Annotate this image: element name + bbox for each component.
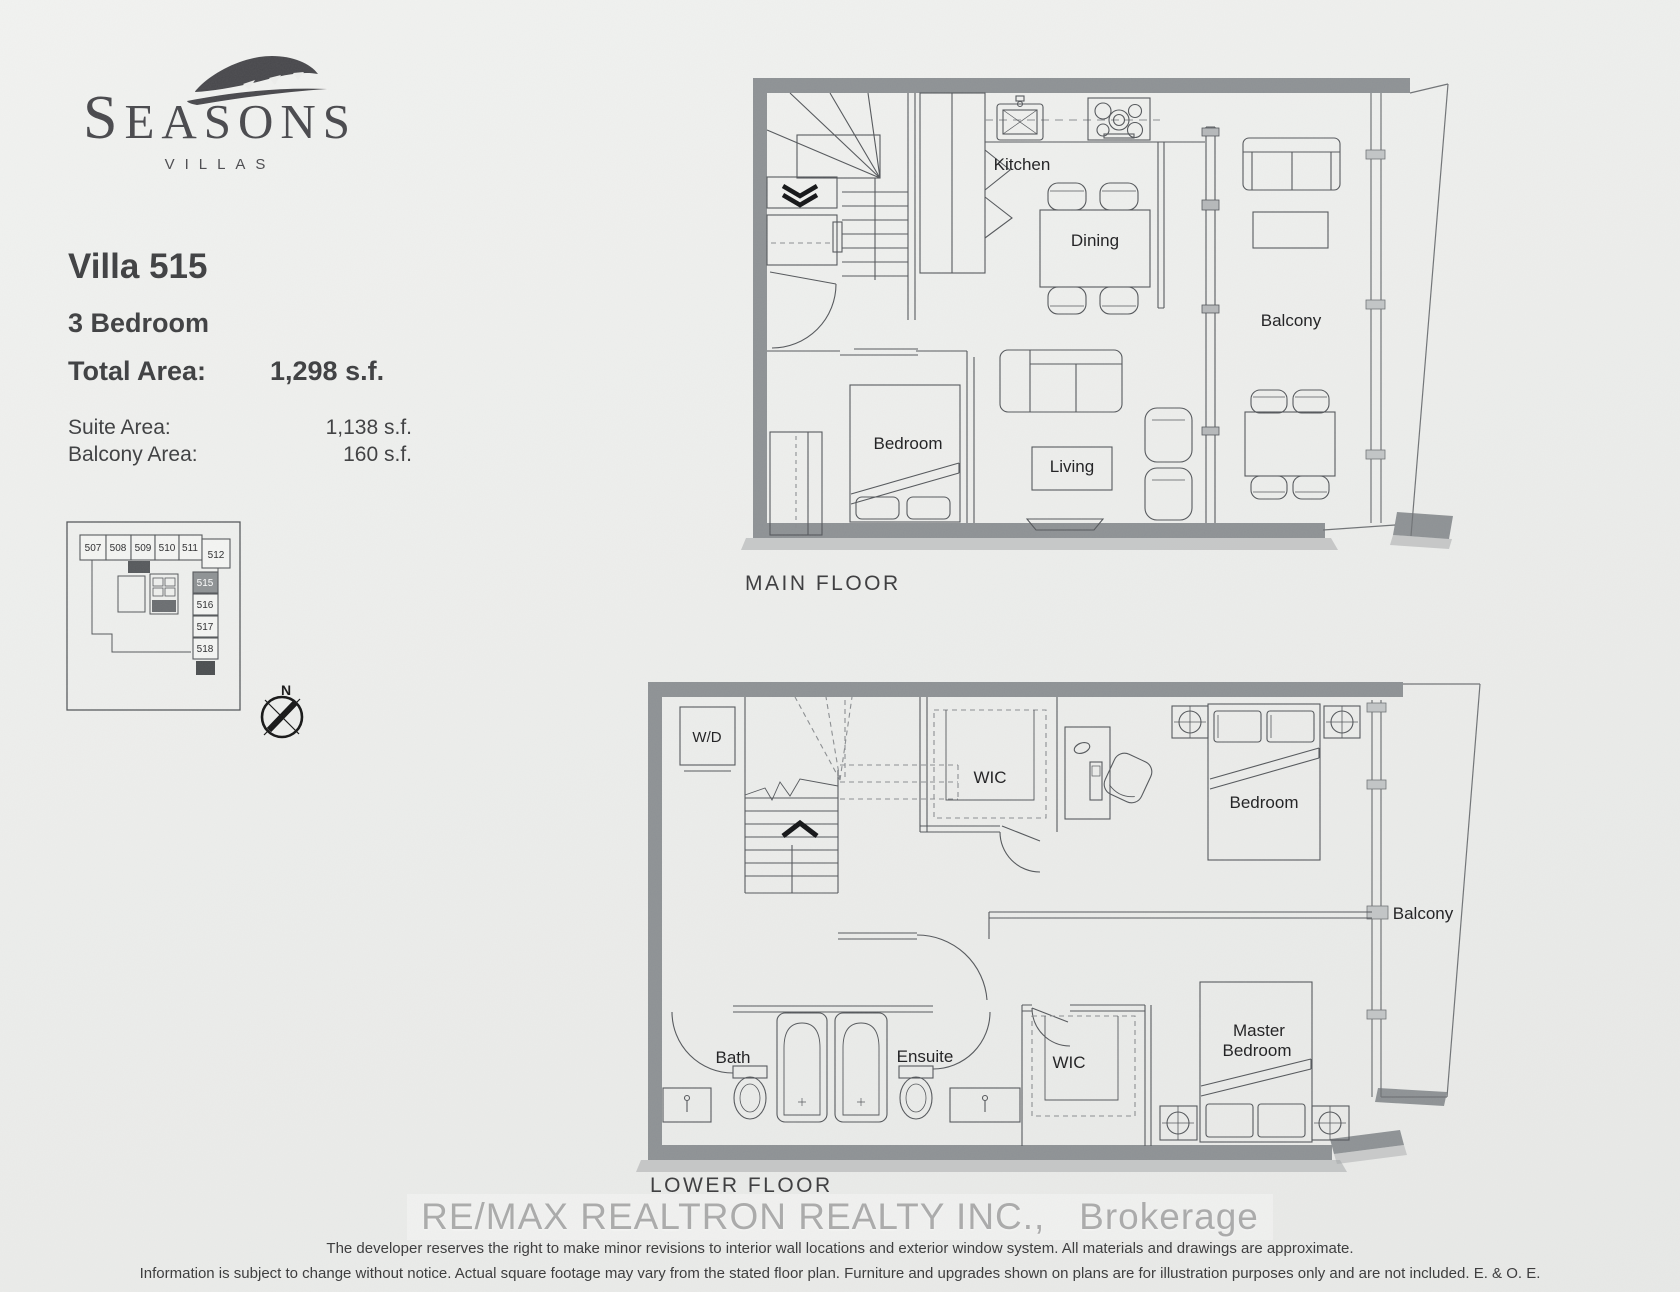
bed-icon	[1208, 704, 1320, 860]
chair-icon	[1100, 287, 1138, 314]
living-area	[1000, 350, 1192, 530]
sink-icon	[997, 96, 1043, 140]
room-label-dining: Dining	[1071, 231, 1119, 250]
chair-icon	[1293, 390, 1329, 413]
logo-subtitle: VILLAS	[50, 156, 390, 173]
chair-icon	[1293, 476, 1329, 499]
total-area-label: Total Area:	[68, 356, 206, 387]
main-floor-walls	[753, 78, 1453, 539]
nightstand-icon	[1312, 1106, 1349, 1140]
keyplan-label-507: 507	[85, 543, 102, 554]
disclaimer: The developer reserves the right to make…	[0, 1236, 1680, 1286]
room-label-balcony-lower: Balcony	[1393, 904, 1454, 923]
keyplan-label-515: 515	[197, 578, 214, 589]
room-label-wic-lower: WIC	[1052, 1053, 1085, 1072]
total-area-value: 1,298 s.f.	[270, 356, 384, 387]
bed-icon	[850, 385, 960, 522]
room-label-master-1: Master	[1233, 1021, 1285, 1040]
bathtub-icon	[777, 1013, 827, 1122]
room-label-bedroom-main: Bedroom	[874, 434, 943, 453]
lower-floor-walls	[648, 682, 1447, 1160]
keyplan-label-508: 508	[110, 543, 127, 554]
corridor-walls	[838, 912, 1372, 1000]
desk-icon	[1065, 727, 1155, 819]
bedroom-main-area	[767, 349, 974, 535]
keyplan-label-510: 510	[159, 543, 176, 554]
master-bedroom-area	[1160, 982, 1349, 1142]
wall-shadow	[636, 1160, 1347, 1172]
patio-table-icon	[1245, 412, 1335, 476]
keyplan-label-517: 517	[197, 622, 214, 633]
unit-title: Villa 515	[68, 247, 207, 287]
wic-lower-area	[1022, 1005, 1151, 1146]
suite-area-value: 1,138 s.f.	[268, 416, 412, 440]
brokerage-watermark: RE/MAX REALTRON REALTY INC., Brokerage	[0, 1194, 1680, 1240]
compass-north-label: N	[281, 682, 291, 698]
room-label-kitchen: Kitchen	[994, 155, 1051, 174]
keyplan-core-elevator	[152, 600, 176, 612]
main-floor-plan: Kitchen Dining Balcony Bedroom Living MA…	[700, 60, 1490, 605]
closet-icon	[770, 432, 822, 535]
armchair-icon	[1145, 468, 1192, 520]
keyplan-label-509: 509	[135, 543, 152, 554]
toilet-icon	[733, 1066, 767, 1119]
armchair-icon	[1145, 408, 1192, 462]
glass-wall	[1206, 127, 1215, 523]
main-floor-caption: MAIN FLOOR	[745, 572, 901, 595]
outdoor-sofa-icon	[1243, 138, 1340, 190]
bed-icon	[1200, 982, 1312, 1142]
nightstand-icon	[1172, 706, 1208, 738]
bedroom-lower-area	[1172, 704, 1360, 860]
unit-type: 3 Bedroom	[68, 308, 209, 339]
vanity-sink-icon	[950, 1088, 1020, 1122]
stairs-main	[767, 93, 915, 320]
side-table-icon	[1253, 212, 1328, 248]
window-mullions	[1367, 703, 1388, 1019]
patio-dining-set	[1245, 390, 1335, 499]
wall-shadow	[741, 538, 1338, 550]
keyplan-core-stair	[128, 561, 150, 573]
compass-rose-icon: N	[262, 682, 302, 737]
toilet-icon	[899, 1066, 933, 1119]
room-label-balcony-main: Balcony	[1261, 311, 1322, 330]
desk-chair-icon	[1101, 750, 1156, 807]
keyplan-label-511: 511	[182, 543, 198, 554]
window-mullions	[1366, 150, 1385, 459]
sofa-icon	[1000, 350, 1122, 412]
watermark-text: RE/MAX REALTRON REALTY INC., Brokerage	[407, 1194, 1273, 1240]
room-label-ensuite: Ensuite	[897, 1047, 954, 1066]
logo: SEASONS VILLAS	[50, 88, 390, 173]
door-arc	[917, 935, 987, 1000]
interior-wall	[1158, 142, 1164, 308]
room-label-living: Living	[1050, 457, 1094, 476]
balcony-outer-edge	[1323, 84, 1448, 536]
keyplan-label-516: 516	[197, 600, 214, 611]
bathtub-icon	[835, 1013, 887, 1122]
keyplan-core-block	[196, 661, 215, 675]
stove-icon	[1088, 98, 1150, 140]
room-label-bedroom-lower: Bedroom	[1230, 793, 1299, 812]
chair-icon	[1048, 183, 1086, 210]
entry-door	[770, 272, 836, 348]
nightstand-icon	[1160, 1106, 1197, 1140]
door-arc	[1032, 1008, 1070, 1046]
keyplan-label-512: 512	[208, 550, 225, 561]
balcony-area-value: 160 s.f.	[268, 443, 412, 467]
stairs-lower	[745, 697, 958, 893]
balcony-area-label: Balcony Area:	[68, 443, 198, 467]
balcony-outer-edge	[1372, 684, 1480, 1097]
room-label-wd: W/D	[692, 729, 721, 746]
building-key-plan: 507 508 509 510 511 512 515 516 517 518 …	[50, 505, 320, 745]
keyplan-label-518: 518	[197, 644, 214, 655]
suite-area-label: Suite Area:	[68, 416, 171, 440]
room-label-bath: Bath	[716, 1048, 751, 1067]
chair-icon	[1251, 390, 1287, 413]
room-label-wic-upper: WIC	[973, 768, 1006, 787]
room-label-master-2: Bedroom	[1223, 1041, 1292, 1060]
chair-icon	[1100, 183, 1138, 210]
disclaimer-line-1: The developer reserves the right to make…	[0, 1236, 1680, 1261]
chair-icon	[1251, 476, 1287, 499]
nightstand-icon	[1324, 706, 1360, 738]
vanity-sink-icon	[663, 1088, 711, 1122]
disclaimer-line-2: Information is subject to change without…	[0, 1261, 1680, 1286]
lower-floor-plan: W/D WIC Bedroom Balcony Bath Ensuite WIC…	[600, 625, 1500, 1205]
logo-name: SEASONS	[50, 88, 390, 152]
chair-icon	[1048, 287, 1086, 314]
